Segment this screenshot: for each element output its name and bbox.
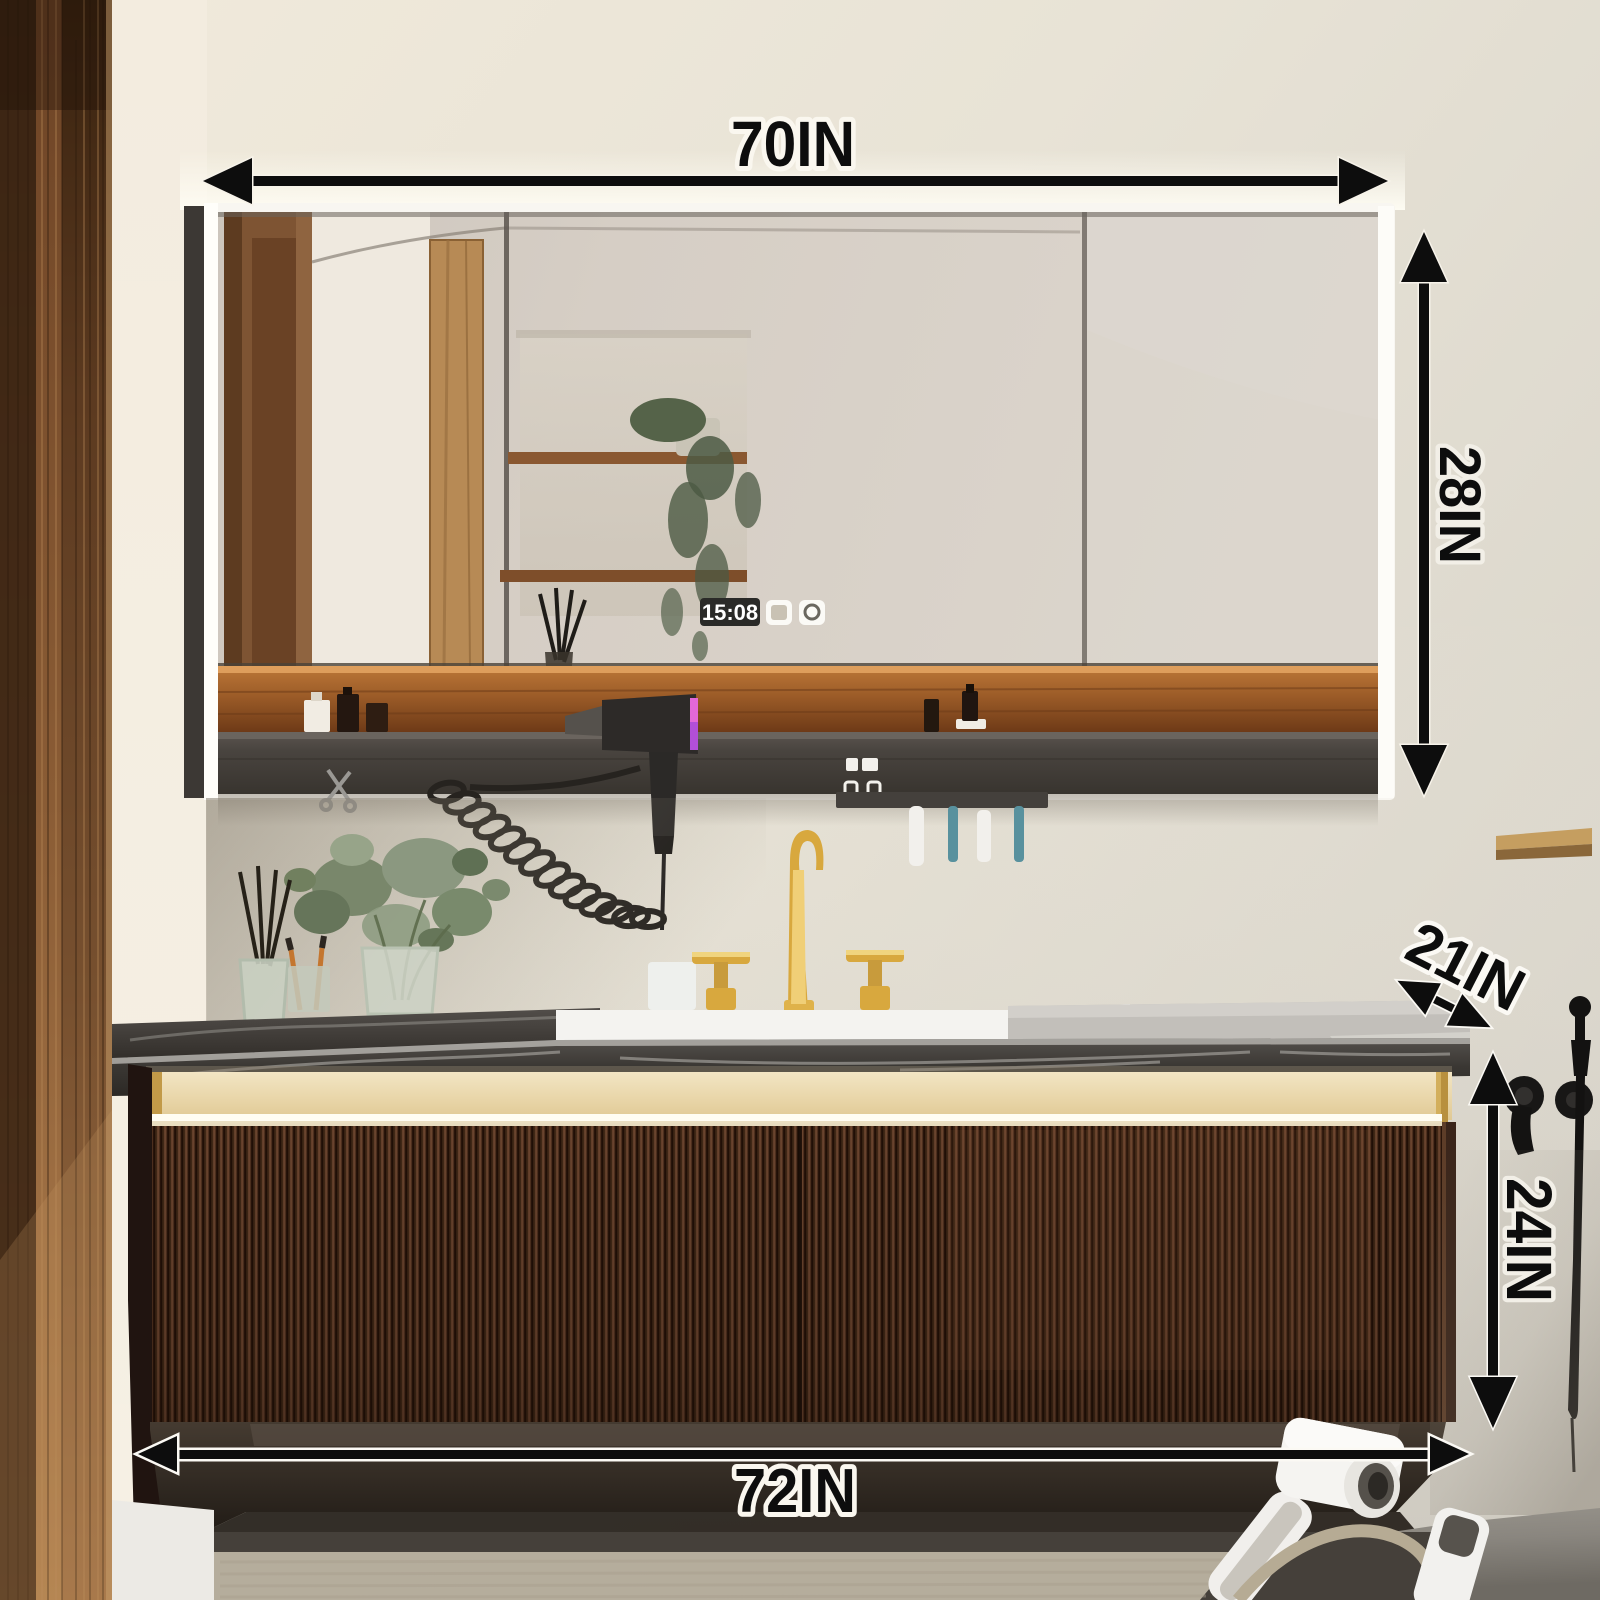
svg-text:70IN: 70IN <box>731 108 855 180</box>
svg-text:72IN: 72IN <box>734 1457 856 1526</box>
svg-text:24IN: 24IN <box>1493 1178 1565 1302</box>
svg-text:15:08: 15:08 <box>702 600 758 625</box>
svg-text:28IN: 28IN <box>1427 446 1492 564</box>
